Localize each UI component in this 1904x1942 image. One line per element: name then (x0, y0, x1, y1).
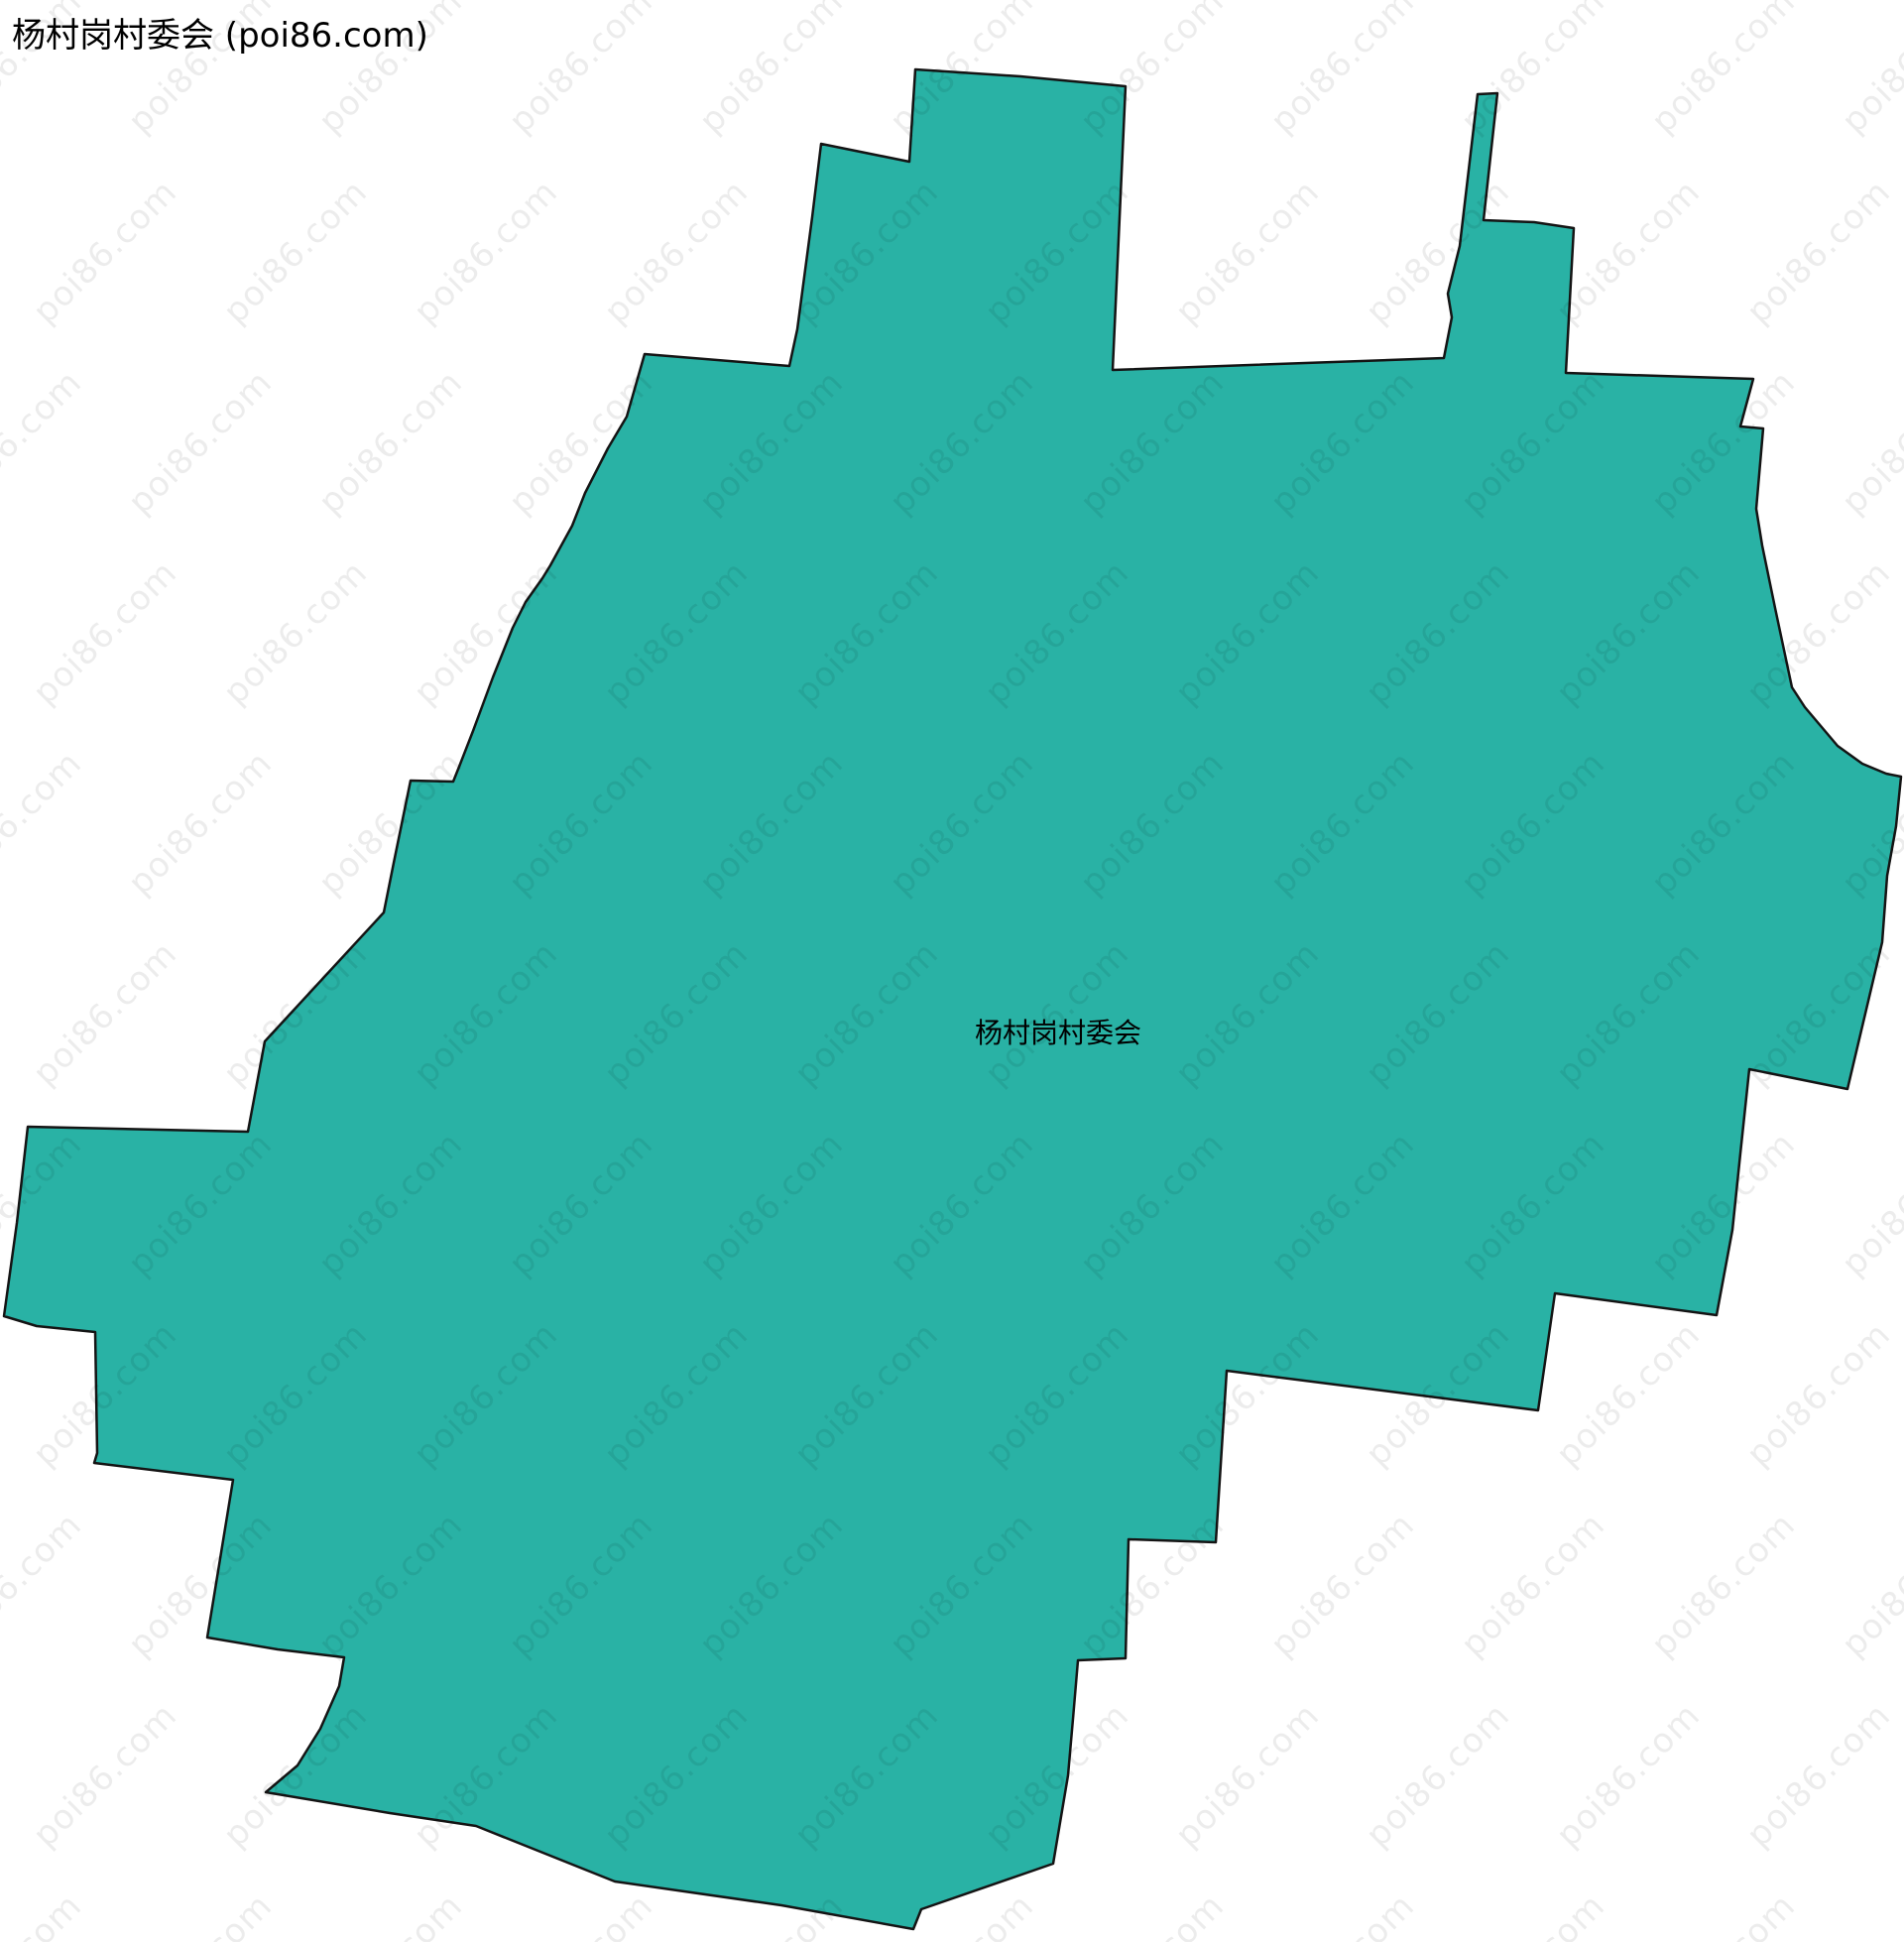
region-label: 杨村岗村委会 (975, 1012, 1141, 1051)
map-canvas (0, 0, 1904, 1942)
map-page: poi86.compoi86.compoi86.compoi86.compoi8… (0, 0, 1904, 1942)
region-polygon (4, 69, 1901, 1929)
page-title: 杨村岗村委会 (poi86.com) (12, 8, 428, 57)
